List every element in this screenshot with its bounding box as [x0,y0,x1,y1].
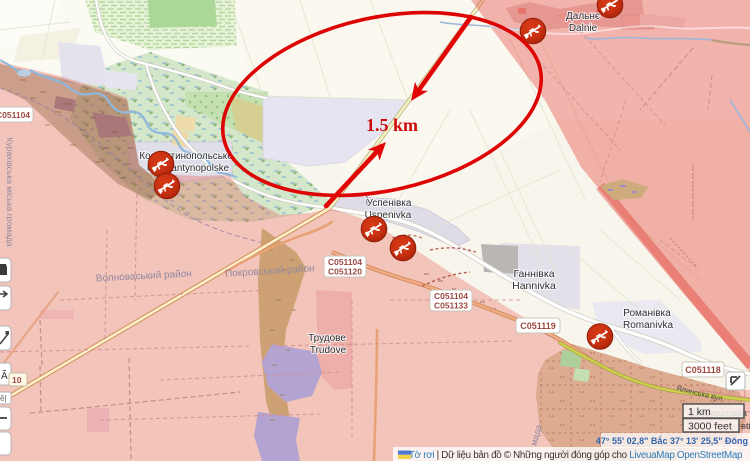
svg-text:Трудове: Трудове [308,333,346,344]
svg-text:C051104: C051104 [328,257,362,267]
svg-text:Ганнівка: Ганнівка [513,268,554,280]
svg-text:Dalnie: Dalnie [569,23,598,34]
svg-text:Ã: Ã [1,369,8,382]
svg-text:C051118: C051118 [685,365,721,375]
svg-text:10: 10 [12,375,22,385]
svg-text:47° 55' 02,8" Bắc 37° 13' 25,5: 47° 55' 02,8" Bắc 37° 13' 25,5" Đông [596,435,748,446]
svg-text:Romanivka: Romanivka [623,320,673,331]
svg-text:C051119: C051119 [520,321,556,331]
svg-text:Курахівська міська громада: Курахівська міська громада [5,137,15,246]
svg-text:Tờ rơi | Dữ liệu bản đồ © Nhữn: Tờ rơi | Dữ liệu bản đồ © Những người đó… [409,450,743,461]
svg-text:C051104: C051104 [0,110,30,120]
svg-text:ĕ|: ĕ| [0,394,7,403]
svg-text:3000 feet: 3000 feet [688,421,732,433]
svg-text:Hannivka: Hannivka [512,280,556,292]
svg-text:C051133: C051133 [434,301,468,311]
svg-text:Дальнє: Дальнє [566,11,600,22]
svg-text:Романівка: Романівка [623,308,671,319]
svg-text:eti: eti [741,421,750,431]
svg-text:C051120: C051120 [328,267,362,277]
svg-text:C051104: C051104 [434,291,468,301]
svg-text:Успенівка: Успенівка [367,198,412,209]
svg-text:1 km: 1 km [688,406,711,418]
svg-text:1.5 km: 1.5 km [366,115,418,135]
svg-text:Trudove: Trudove [310,345,347,356]
